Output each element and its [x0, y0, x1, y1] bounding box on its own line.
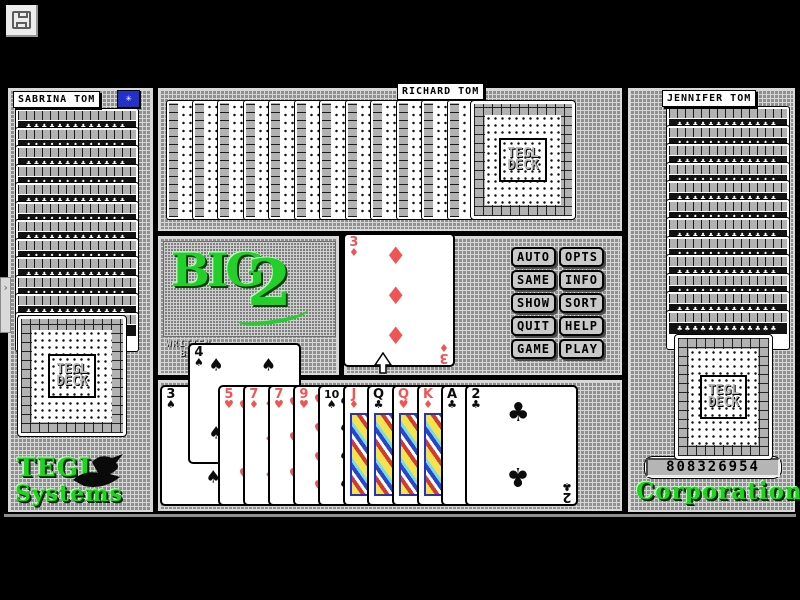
club-icon: ♣ — [562, 481, 572, 491]
spade-icon: ♠ — [166, 400, 176, 410]
spade-icon: ♠ — [194, 358, 204, 368]
card-corner-index: Q♥ — [398, 390, 409, 410]
card-back-edge — [297, 103, 306, 217]
card-back-edge — [322, 103, 331, 217]
deck-label: TEGLDECK — [507, 148, 538, 172]
pile-card-3-diamond: 3♦3♦♦♦♦ — [343, 233, 455, 367]
card-back-edge — [669, 165, 787, 174]
brand-corporation: Corporation — [636, 478, 790, 505]
floppy-disk-icon — [12, 11, 31, 29]
diamond-icon: ♦ — [423, 400, 433, 410]
card-back-edge — [399, 103, 408, 217]
mouse-cursor-up-arrow — [374, 352, 392, 374]
card-back-edge — [373, 103, 382, 217]
player-name-plate-top: RICHARD TOM — [397, 83, 484, 100]
heart-icon: ♥ — [224, 400, 234, 410]
card-back-edge — [220, 103, 229, 217]
deck-label-line2: DECK — [507, 160, 538, 172]
card-back-edge — [669, 183, 787, 192]
diamond-icon: ♦ — [439, 342, 449, 352]
card-corner-index: 10♠ — [324, 390, 339, 410]
heart-icon: ♥ — [274, 400, 284, 410]
spade-icon: ♠ — [261, 358, 276, 375]
card-back-edge — [669, 276, 787, 285]
club-icon: ♣ — [373, 400, 384, 410]
club-icon: ♣ — [447, 400, 457, 410]
button-same[interactable]: SAME — [511, 270, 556, 290]
card-corner-index: 7♥ — [274, 390, 284, 410]
deck-label-line2: DECK — [708, 397, 739, 409]
game-screen: › SABRINA TOM RICHARD TOM JENNIFER TOM ✳… — [0, 0, 800, 600]
spade-icon: ♠ — [324, 400, 339, 410]
club-icon: ♣ — [507, 400, 530, 426]
card-back-edge — [669, 294, 787, 303]
card-corner-index: 2♣ — [471, 390, 481, 410]
diamond-icon: ♦ — [349, 400, 359, 410]
card-back-deck-right: TEGLDECK — [674, 334, 773, 460]
card-back-edge — [669, 257, 787, 266]
diamond-icon: ♦ — [249, 400, 259, 410]
club-icon: ♣ — [507, 463, 530, 489]
card-back-edge — [18, 111, 136, 120]
deck-label-line2: DECK — [56, 376, 87, 388]
card-back-edge — [18, 259, 136, 268]
card-corner-index: 4♠ — [194, 348, 204, 368]
diamond-icon: ♦ — [385, 324, 407, 348]
heart-icon: ♥ — [398, 400, 409, 410]
diamond-icon: ♦ — [349, 248, 359, 258]
button-opts[interactable]: OPTS — [559, 247, 604, 267]
button-show[interactable]: SHOW — [511, 293, 556, 313]
card-corner-index: 5♥ — [224, 390, 234, 410]
card-back-edge — [18, 204, 136, 213]
card-back-edge — [169, 103, 178, 217]
card-back-edge — [669, 128, 787, 137]
card-back-edge — [271, 103, 280, 217]
card-corner-index: 3♠ — [166, 390, 176, 410]
card-corner-index: A♣ — [447, 390, 457, 410]
deck-inner-box: TEGLDECK — [700, 375, 747, 419]
star-button[interactable]: ✳ — [117, 90, 140, 108]
card-back-symbols: ♣♣♣♣♣♣♣♣♣♣♣♣♣ — [669, 323, 787, 334]
deck-inner-box: TEGLDECK — [48, 354, 95, 398]
floppy-shutter — [18, 12, 28, 18]
card-corner-index: 2♣ — [562, 481, 572, 501]
card-corner-index: 3♦ — [349, 238, 359, 258]
card-back-edge — [18, 167, 136, 176]
card-corner-index: 3♦ — [439, 342, 449, 362]
card-back-edge — [18, 130, 136, 139]
card-back-edge — [669, 109, 787, 118]
card-corner-index: 7♦ — [249, 390, 259, 410]
chevron-right-icon: › — [2, 281, 9, 294]
bottom-divider — [4, 514, 796, 517]
button-help[interactable]: HELP — [559, 316, 604, 336]
club-icon: ♣ — [471, 400, 481, 410]
button-sort[interactable]: SORT — [559, 293, 604, 313]
hand-card-2-club[interactable]: 2♣2♣♣♣ — [465, 385, 578, 506]
save-button[interactable] — [6, 5, 38, 37]
card-corner-index: 9♥ — [299, 390, 309, 410]
card-back-edge — [18, 148, 136, 157]
diamond-icon: ♦ — [385, 284, 407, 308]
card-corner-index: J♦ — [349, 390, 359, 410]
card-back-edge — [18, 241, 136, 250]
deck-inner-box: TEGLDECK — [499, 138, 546, 182]
button-game[interactable]: GAME — [511, 339, 556, 359]
spade-icon: ♠ — [209, 358, 224, 375]
card-back-edge — [669, 146, 787, 155]
deck-dot-field: TEGLDECK — [485, 115, 561, 205]
deck-dot-field: TEGLDECK — [689, 349, 758, 445]
card-back-deck-top: TEGLDECK — [470, 100, 576, 220]
card-back-edge — [450, 103, 459, 217]
side-panel-tab[interactable]: › — [0, 277, 11, 333]
card-back-edge — [669, 313, 787, 322]
card-corner-index: K♦ — [423, 390, 433, 410]
floppy-label — [16, 22, 27, 28]
card-back-edge — [18, 222, 136, 231]
card-back-edge — [669, 220, 787, 229]
button-quit[interactable]: QUIT — [511, 316, 556, 336]
player-name-plate-left: SABRINA TOM — [13, 91, 100, 108]
diamond-icon: ♦ — [385, 244, 407, 268]
button-auto[interactable]: AUTO — [511, 247, 556, 267]
deck-label: TEGLDECK — [56, 364, 87, 388]
swan-logo-icon — [70, 450, 126, 492]
card-back-edge — [18, 185, 136, 194]
heart-icon: ♥ — [299, 400, 309, 410]
button-info[interactable]: INFO — [559, 270, 604, 290]
card-back-edge — [18, 296, 136, 305]
card-back-deck-left: TEGLDECK — [17, 315, 127, 437]
star-icon: ✳ — [125, 93, 131, 104]
card-back-edge — [246, 103, 255, 217]
player-name-plate-right: JENNIFER TOM — [662, 90, 756, 107]
deck-dot-field: TEGLDECK — [32, 330, 112, 422]
card-back-edge — [18, 278, 136, 287]
card-back-edge — [424, 103, 433, 217]
card-corner-index: Q♣ — [373, 390, 384, 410]
card-back-edge — [669, 202, 787, 211]
card-back-edge — [195, 103, 204, 217]
card-back-edge — [348, 103, 357, 217]
button-play[interactable]: PLAY — [559, 339, 604, 359]
card-back-edge — [669, 239, 787, 248]
serial-number: 808326954 — [646, 458, 780, 477]
deck-label: TEGLDECK — [708, 385, 739, 409]
